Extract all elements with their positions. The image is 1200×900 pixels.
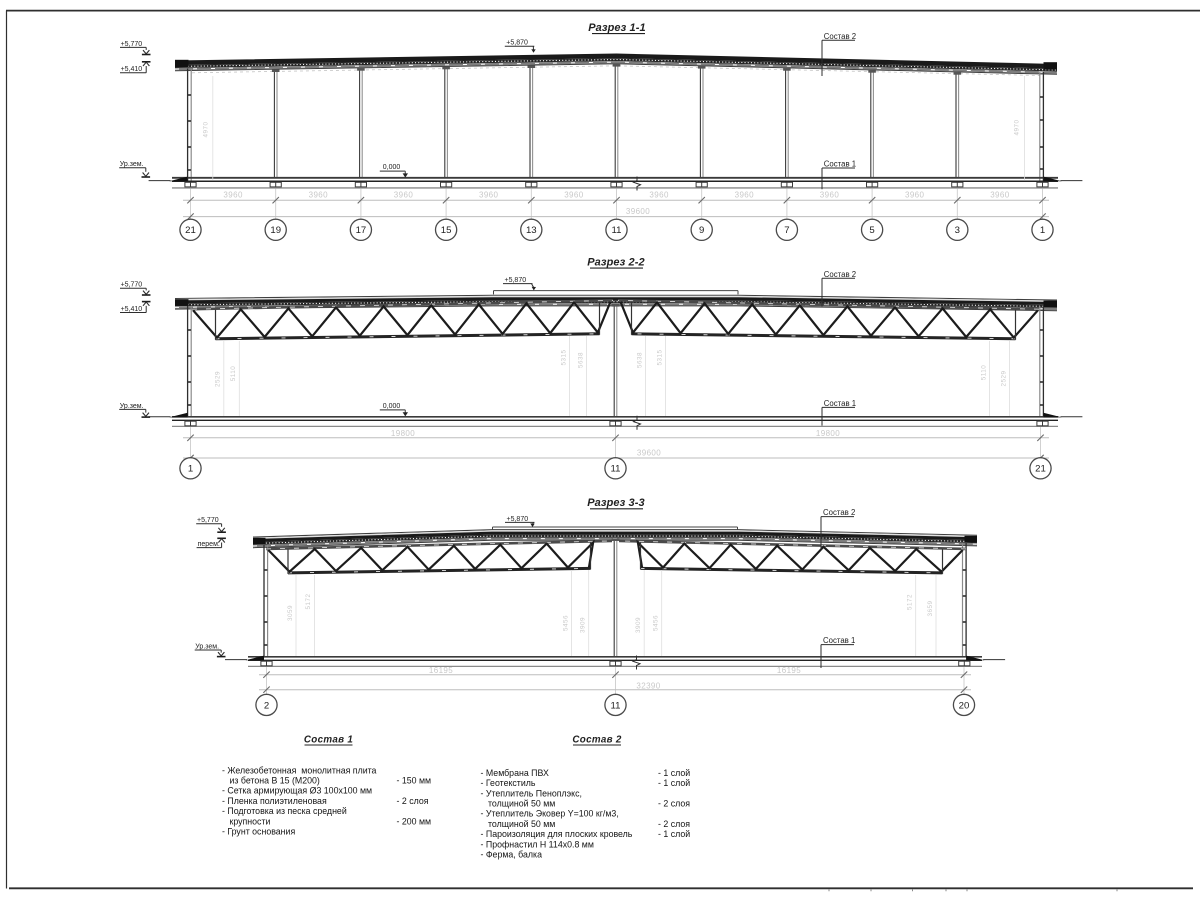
svg-text:21: 21: [1035, 464, 1046, 475]
svg-text:5638: 5638: [637, 352, 644, 368]
svg-text:- Геотекстиль: - Геотекстиль: [481, 778, 536, 788]
svg-text:3960: 3960: [223, 191, 243, 200]
svg-text:39600: 39600: [637, 448, 661, 457]
svg-text:- Утеплитель Эковер Y=100 кг/м: - Утеплитель Эковер Y=100 кг/м3,: [481, 809, 619, 819]
svg-text:2: 2: [264, 700, 269, 711]
svg-text:Состав 2: Состав 2: [824, 32, 856, 41]
svg-text:+5,770: +5,770: [121, 41, 143, 48]
svg-text:3960: 3960: [990, 191, 1010, 200]
svg-text:15: 15: [441, 225, 452, 236]
svg-text:20: 20: [959, 700, 970, 711]
svg-text:3960: 3960: [735, 191, 755, 200]
svg-text:5172: 5172: [305, 593, 312, 609]
svg-text:11: 11: [611, 464, 621, 475]
svg-text:3: 3: [955, 225, 960, 236]
svg-text:39600: 39600: [626, 207, 650, 216]
svg-text:21: 21: [185, 225, 196, 236]
svg-text:+5,410: +5,410: [121, 66, 143, 73]
svg-text:толщиной 50 мм: толщиной 50 мм: [488, 799, 555, 809]
svg-text:3960: 3960: [394, 191, 414, 200]
svg-text:7: 7: [784, 225, 789, 236]
svg-text:5315: 5315: [657, 349, 664, 365]
svg-text:3059: 3059: [287, 605, 294, 621]
svg-text:17: 17: [356, 225, 367, 236]
svg-text:+5,770: +5,770: [197, 517, 219, 524]
svg-text:11: 11: [612, 225, 622, 236]
svg-text:Состав 1: Состав 1: [304, 735, 353, 746]
svg-text:2529: 2529: [1001, 370, 1008, 386]
svg-text:5110: 5110: [230, 366, 237, 382]
svg-text:1: 1: [1040, 225, 1045, 236]
svg-text:перем.: перем.: [198, 541, 220, 548]
svg-text:Состав 1: Состав 1: [824, 160, 856, 169]
svg-text:3909: 3909: [580, 617, 587, 633]
svg-text:5638: 5638: [578, 352, 585, 368]
svg-text:- Пленка полиэтиленовая: - Пленка полиэтиленовая: [222, 796, 327, 806]
svg-text:- 2 слоя: - 2 слоя: [658, 799, 690, 809]
svg-text:- 2 слоя: - 2 слоя: [658, 819, 690, 829]
svg-text:0,000: 0,000: [383, 403, 401, 410]
svg-text:+5,870: +5,870: [505, 277, 527, 284]
svg-text:- Профнастил Н 114х0.8 мм: - Профнастил Н 114х0.8 мм: [481, 839, 594, 849]
svg-text:5110: 5110: [981, 365, 988, 381]
svg-text:- 1 слой: - 1 слой: [658, 829, 690, 839]
svg-text:Состав 2: Состав 2: [823, 508, 855, 517]
svg-text:1: 1: [188, 464, 193, 475]
svg-text:толщиной 50 мм: толщиной 50 мм: [488, 819, 555, 829]
svg-text:- Железобетонная монолитная п: - Железобетонная монолитная плита: [222, 765, 377, 775]
svg-text:Ур.зем.: Ур.зем.: [120, 403, 144, 410]
svg-text:13: 13: [526, 225, 537, 236]
svg-text:4970: 4970: [1014, 119, 1021, 135]
svg-text:32390: 32390: [636, 681, 660, 690]
svg-text:из бетона В 15 (М200): из бетона В 15 (М200): [230, 776, 320, 786]
svg-text:5: 5: [869, 225, 874, 236]
svg-text:19: 19: [270, 225, 281, 236]
svg-text:2529: 2529: [215, 371, 222, 387]
svg-text:Разрез 2-2: Разрез 2-2: [587, 257, 644, 269]
svg-text:Состав 1: Состав 1: [824, 399, 856, 408]
svg-text:- Грунт основания: - Грунт основания: [222, 827, 295, 837]
svg-text:+5,770: +5,770: [121, 282, 143, 289]
svg-text:11: 11: [611, 700, 621, 711]
svg-text:5315: 5315: [561, 349, 568, 365]
svg-text:3960: 3960: [649, 191, 669, 200]
svg-text:3960: 3960: [564, 191, 584, 200]
svg-text:- Пароизоляция для плоских кро: - Пароизоляция для плоских кровель: [481, 829, 633, 839]
svg-text:+5,410: +5,410: [121, 306, 143, 313]
svg-text:+5,870: +5,870: [506, 40, 528, 47]
svg-text:3960: 3960: [905, 191, 925, 200]
svg-text:- 1 слой: - 1 слой: [658, 778, 690, 788]
svg-text:19800: 19800: [391, 429, 415, 438]
svg-text:19800: 19800: [816, 429, 840, 438]
svg-text:4970: 4970: [203, 121, 210, 137]
svg-text:крупности: крупности: [230, 816, 271, 826]
svg-text:Ур.зем.: Ур.зем.: [120, 161, 144, 168]
svg-text:Состав 2: Состав 2: [572, 735, 621, 746]
svg-text:5456: 5456: [562, 615, 569, 631]
svg-text:+5,870: +5,870: [507, 516, 529, 523]
svg-text:16195: 16195: [777, 666, 801, 675]
svg-text:3659: 3659: [927, 600, 934, 616]
svg-text:- Мембрана ПВХ: - Мембрана ПВХ: [481, 768, 549, 778]
svg-text:3909: 3909: [635, 617, 642, 633]
svg-text:- 200 мм: - 200 мм: [397, 816, 432, 826]
svg-text:5172: 5172: [907, 594, 914, 610]
svg-text:- 1 слой: - 1 слой: [658, 768, 690, 778]
svg-text:- Ферма, балка: - Ферма, балка: [481, 850, 543, 860]
svg-text:5456: 5456: [653, 615, 660, 631]
svg-text:3960: 3960: [479, 191, 499, 200]
svg-text:Разрез 3-3: Разрез 3-3: [587, 497, 644, 509]
svg-text:3960: 3960: [820, 191, 840, 200]
svg-text:Состав 1: Состав 1: [823, 636, 855, 645]
svg-text:- Подготовка из песка средней: - Подготовка из песка средней: [222, 806, 347, 816]
svg-text:0,000: 0,000: [383, 164, 401, 171]
svg-text:Ур.зем.: Ур.зем.: [195, 643, 219, 650]
svg-text:- Утеплитель Пеноплэкс,: - Утеплитель Пеноплэкс,: [481, 788, 582, 798]
svg-text:- 2 слоя: - 2 слоя: [397, 796, 429, 806]
svg-text:- Сетка армирующая Ø3 100х100: - Сетка армирующая Ø3 100х100 мм: [222, 786, 372, 796]
svg-text:3960: 3960: [309, 191, 329, 200]
svg-text:- 150 мм: - 150 мм: [397, 776, 432, 786]
svg-text:9: 9: [699, 225, 704, 236]
svg-text:16195: 16195: [429, 666, 453, 675]
svg-text:Состав 2: Состав 2: [824, 270, 856, 279]
svg-text:Разрез 1-1: Разрез 1-1: [588, 22, 645, 34]
